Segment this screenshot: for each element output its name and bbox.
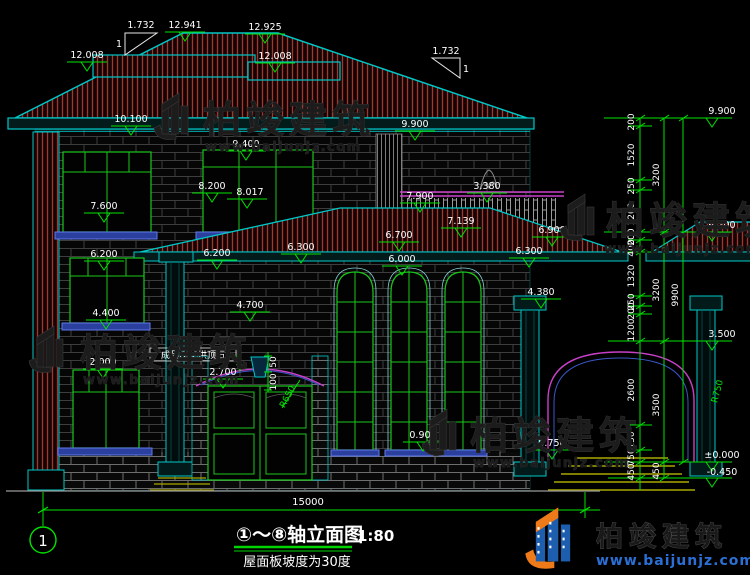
elevation-mark: 4.700 <box>236 300 263 311</box>
elevation-mark: 10.100 <box>114 114 147 125</box>
svg-text:www.baijunjz.com: www.baijunjz.com <box>473 456 630 471</box>
svg-text:450: 450 <box>652 462 662 479</box>
level-marker: 9.900 <box>708 106 735 117</box>
svg-text:柏竣建筑: 柏竣建筑 <box>606 199 750 243</box>
svg-text:1200: 1200 <box>627 318 637 341</box>
svg-text:www.baijunjz.com: www.baijunjz.com <box>205 140 362 155</box>
elevation-mark: 7.600 <box>90 201 117 212</box>
title-block: ①～⑧轴立面图 1:80 屋面板坡度为30度 <box>234 523 394 570</box>
roof-slope-note: 屋面板坡度为30度 <box>243 554 351 570</box>
svg-text:3500: 3500 <box>652 393 662 416</box>
arched-windows <box>331 268 487 456</box>
column-capital <box>690 296 722 310</box>
arch-dim-50: 50 <box>269 356 279 368</box>
elevation-mark: 8.017 <box>236 187 263 198</box>
svg-text:柏竣建筑: 柏竣建筑 <box>470 414 642 458</box>
axis-number: 1 <box>38 532 48 550</box>
elevation-mark: 4.400 <box>92 308 119 319</box>
slope-rise-label: 1 <box>463 64 469 75</box>
elevation-mark: 9.900 <box>401 119 428 130</box>
drawing-scale: 1:80 <box>357 527 394 545</box>
elevation-mark: 6.000 <box>388 254 415 265</box>
slope-rise-label: 1 <box>116 39 122 50</box>
chain3-labels: 9900 <box>671 283 681 306</box>
chimney <box>33 132 59 470</box>
svg-text:1520: 1520 <box>627 143 637 166</box>
elevation-mark: 12.925 <box>248 22 281 33</box>
level-marker: ±0.000 <box>704 450 739 461</box>
svg-text:250: 250 <box>627 177 637 194</box>
elevation-mark: 4.380 <box>527 287 554 298</box>
elevation-mark: 6.300 <box>515 246 542 257</box>
window-3f-left <box>55 152 157 239</box>
elevation-mark: 6.200 <box>90 249 117 260</box>
chimney-base <box>28 470 64 490</box>
arched-window <box>331 268 379 456</box>
brand-url: www.baijunjz.com <box>596 553 750 569</box>
svg-text:www.baijunjz.com: www.baijunjz.com <box>83 373 240 388</box>
overall-width-dim: 15000 <box>292 497 324 508</box>
svg-text:200: 200 <box>627 302 637 319</box>
svg-text:柏竣建筑: 柏竣建筑 <box>80 331 252 375</box>
door-pilaster-right <box>312 356 328 480</box>
elevation-mark: 3.380 <box>473 181 500 192</box>
brand-logo-icon <box>525 507 570 568</box>
elevation-mark: 6.200 <box>203 248 230 259</box>
svg-text:柏竣建筑: 柏竣建筑 <box>203 98 375 142</box>
elevation-mark: 12.008 <box>258 51 291 62</box>
svg-text:200: 200 <box>627 113 637 130</box>
window-2f-left <box>62 258 150 330</box>
elevation-mark: 12.941 <box>168 20 201 31</box>
right-roof-slab <box>248 62 340 80</box>
brand-logo: 柏竣建筑 www.baijunjz.com <box>525 507 750 569</box>
svg-text:www.baijunjz.com: www.baijunjz.com <box>604 242 750 257</box>
elevation-mark: 8.200 <box>198 181 225 192</box>
arch-dim-100: 100 <box>269 373 279 390</box>
left-roof-slab <box>93 55 255 77</box>
elevation-mark: 12.008 <box>70 50 103 61</box>
cad-elevation-screenshot: 1.732 1 1.732 1 12.008 12.941 12.925 12.… <box>0 0 750 575</box>
svg-text:1320: 1320 <box>627 264 637 287</box>
level-marker: -0.450 <box>707 467 738 478</box>
svg-text:9900: 9900 <box>671 283 681 306</box>
elevation-drawing: 1.732 1 1.732 1 12.008 12.941 12.925 12.… <box>0 0 750 575</box>
slope-run-label: 1.732 <box>432 46 459 57</box>
level-marker: 3.500 <box>708 329 735 340</box>
svg-text:3200: 3200 <box>652 163 662 186</box>
elevation-mark: 6.700 <box>385 230 412 241</box>
slope-run-label: 1.732 <box>127 20 154 31</box>
elevation-mark: 6.300 <box>287 242 314 253</box>
fluted-pilaster <box>376 134 402 214</box>
elevation-mark: 7.139 <box>447 216 474 227</box>
svg-text:3200: 3200 <box>652 278 662 301</box>
drawing-title: ①～⑧轴立面图 <box>236 523 363 546</box>
brand-name: 柏竣建筑 <box>596 521 728 553</box>
elevation-mark: 7.900 <box>406 191 433 202</box>
arched-window <box>385 268 433 456</box>
svg-text:2600: 2600 <box>627 378 637 401</box>
